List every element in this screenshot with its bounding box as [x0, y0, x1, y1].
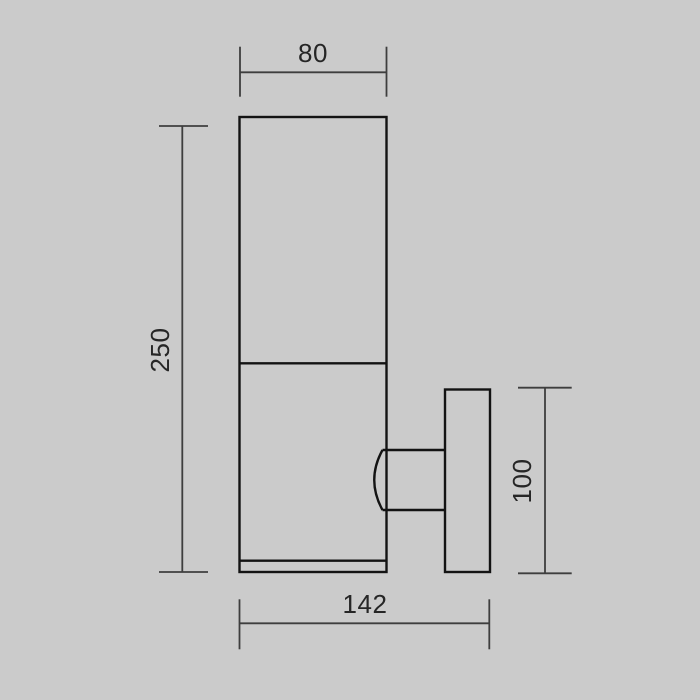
dim-label-top-width: 80 — [298, 38, 328, 68]
wall-plate — [445, 390, 490, 573]
drawing-canvas: 80 250 100 142 — [0, 0, 700, 700]
dim-label-overall-height: 250 — [145, 328, 175, 373]
dim-label-bracket-height: 100 — [507, 459, 537, 504]
lamp-outline — [240, 117, 491, 572]
dimension-lines — [159, 47, 572, 650]
mount-joint-arc — [374, 450, 382, 510]
dim-label-overall-depth: 142 — [343, 589, 388, 619]
lamp-dimension-drawing: 80 250 100 142 — [0, 0, 700, 700]
lamp-body — [240, 117, 387, 572]
